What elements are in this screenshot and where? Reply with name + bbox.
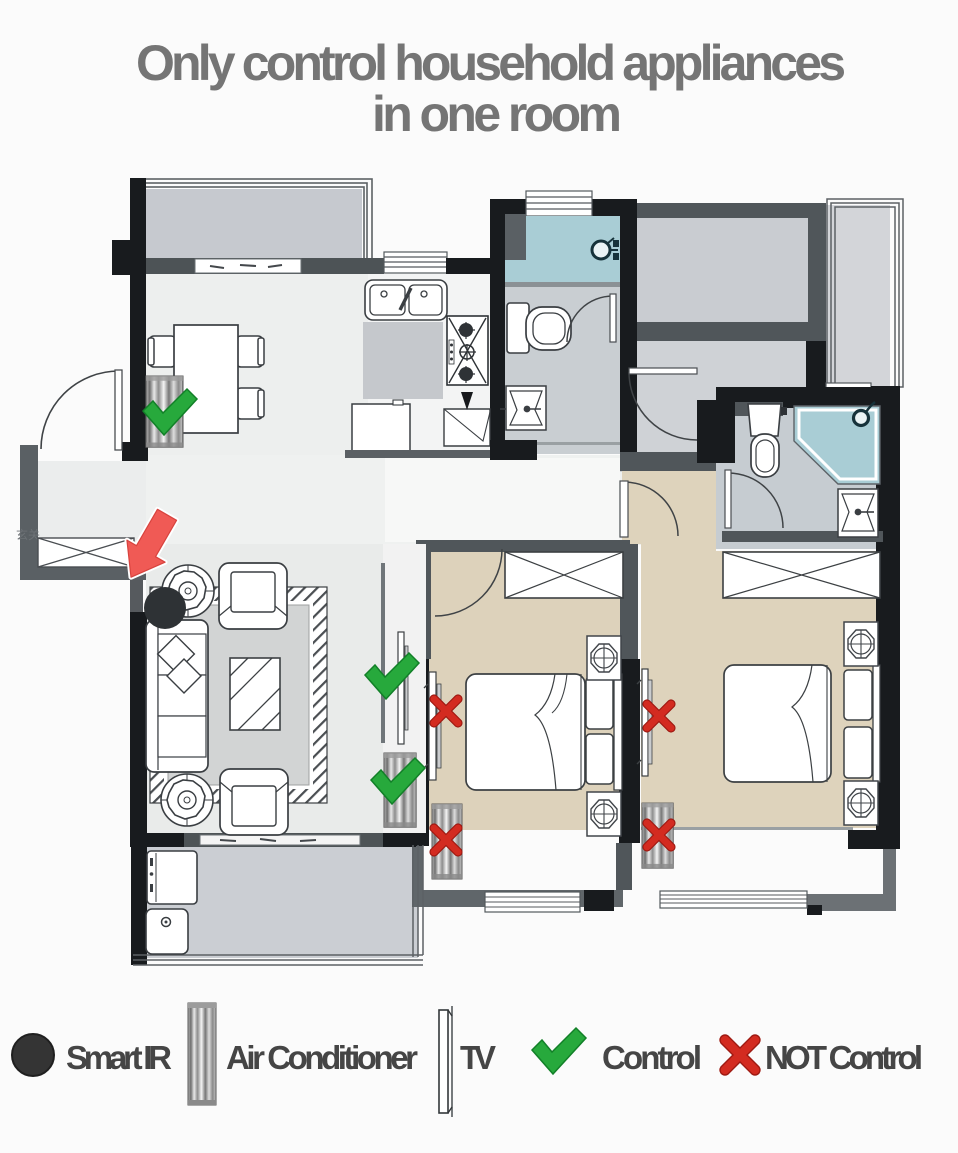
svg-text:玄关: 玄关 (16, 527, 40, 542)
svg-text:Air Conditioner: Air Conditioner (226, 1039, 418, 1076)
svg-text:in one room: in one room (372, 86, 622, 142)
svg-text:NOT Control: NOT Control (765, 1039, 923, 1076)
svg-text:TV: TV (460, 1039, 496, 1076)
svg-text:Only control household applian: Only control household appliances (136, 35, 846, 91)
svg-text:Control: Control (602, 1039, 702, 1076)
svg-text:Smart IR: Smart IR (66, 1039, 172, 1076)
